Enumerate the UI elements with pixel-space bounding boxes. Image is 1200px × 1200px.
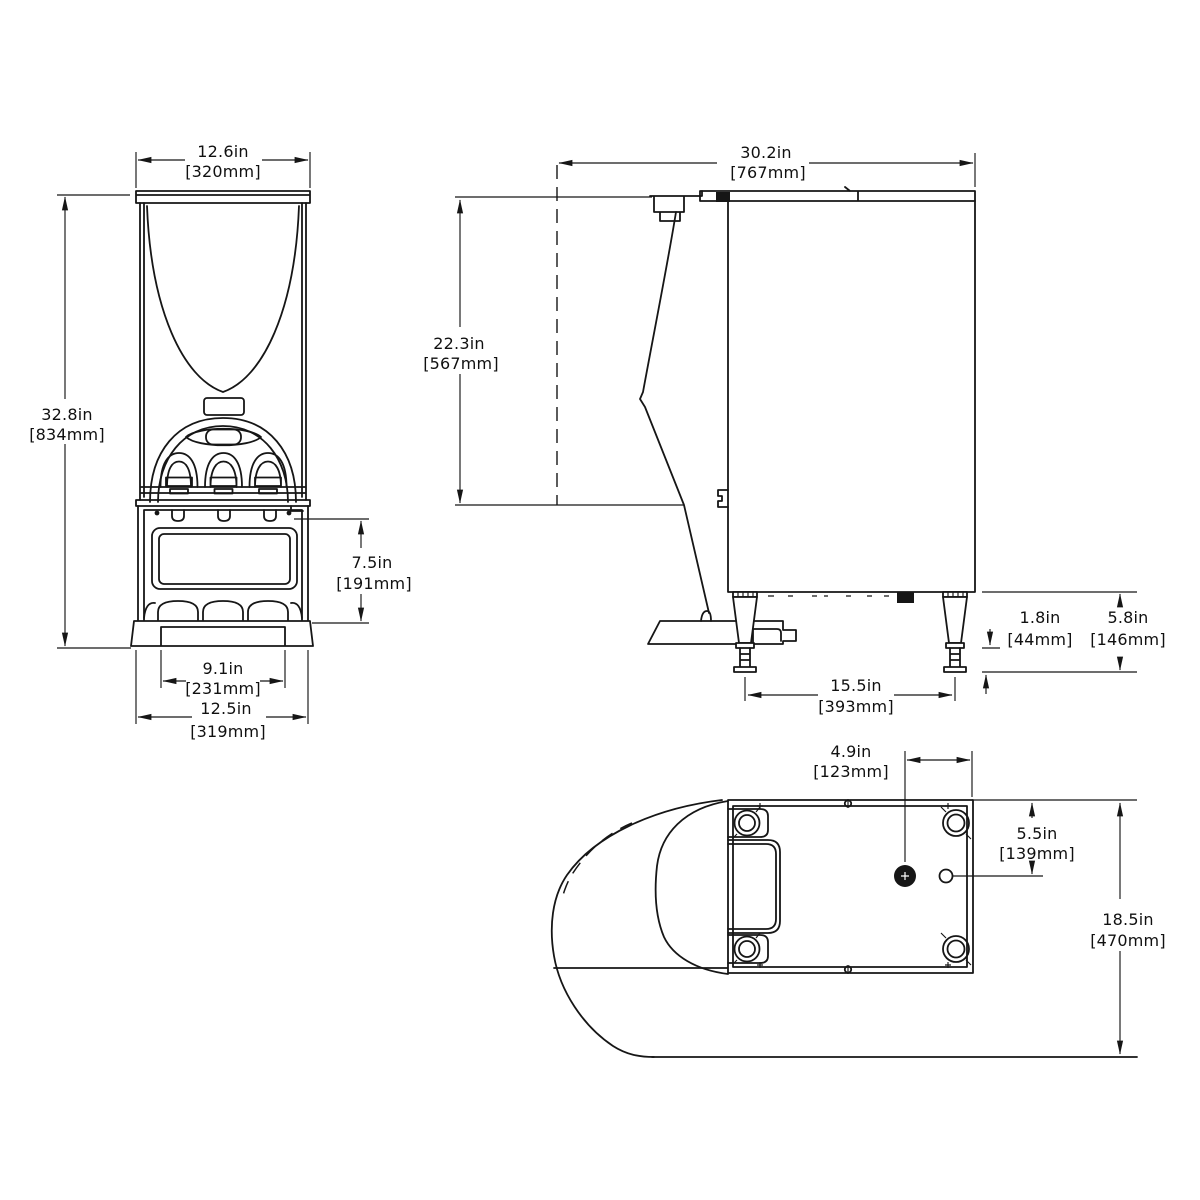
dim-leg-spacing-mm: [393mm] [818, 697, 894, 716]
dim-leg-height-in: 5.8in [1107, 608, 1148, 627]
front-badge [204, 398, 244, 415]
dim-counter-height-mm: [567mm] [423, 354, 499, 373]
dim-counter-height-in: 22.3in [433, 334, 484, 353]
dim-base-inner-mm: [231mm] [185, 679, 261, 698]
side-view: 30.2in [767mm] 22.3in [567mm] 15.5in [39… [423, 143, 1166, 716]
front-dim-height: 32.8in [834mm] [29, 195, 131, 648]
dim-leg-height-mm: [146mm] [1090, 630, 1166, 649]
front-lid [136, 191, 310, 203]
dim-front-height-in: 32.8in [41, 405, 92, 424]
front-body-walls [140, 203, 306, 500]
spec-sheet-page: 12.6in [320mm] 32.8in [834mm] 7.5in [191… [0, 0, 1200, 1200]
dim-footprint-mm: [470mm] [1090, 931, 1166, 950]
bottom-plate-outer [728, 800, 973, 973]
front-lens-button [206, 430, 241, 445]
dim-depth-mm: [767mm] [730, 163, 806, 182]
dim-base-in: 12.5in [200, 699, 251, 718]
dimension-drawing: 12.6in [320mm] 32.8in [834mm] 7.5in [191… [0, 0, 1200, 1200]
side-hopper-profile [640, 212, 709, 613]
dim-dispense-in: 7.5in [351, 553, 392, 572]
dim-drain-side-mm: [123mm] [813, 762, 889, 781]
side-outline [640, 187, 975, 672]
front-dim-dispense: 7.5in [191mm] [294, 519, 412, 623]
front-dim-base-inner: 9.1in [231mm] [161, 650, 285, 698]
bottom-view: 4.9in [123mm] 5.5in [139mm] 18.5in [470m… [552, 742, 1166, 1057]
front-base [131, 621, 313, 646]
dim-base-inner-in: 9.1in [202, 659, 243, 678]
dim-base-mm: [319mm] [190, 722, 266, 741]
front-lens [186, 429, 261, 446]
bottom-front-curve-outer [552, 800, 722, 1057]
front-tray-window-outer [152, 528, 297, 589]
side-drip-tray [648, 621, 796, 644]
bottom-dim-drain-rear: 5.5in [139mm] [953, 800, 1137, 876]
front-tray-window-inner [159, 534, 290, 584]
dim-front-height-mm: [834mm] [29, 425, 105, 444]
bottom-cutout [728, 840, 780, 933]
bottom-dim-drain-side: 4.9in [123mm] [813, 742, 972, 862]
bottom-hole [940, 870, 953, 883]
side-drain-fitting [897, 592, 914, 603]
front-outline [131, 191, 313, 646]
bottom-front-curve-hidden [562, 823, 632, 899]
dim-front-width-in: 12.6in [197, 142, 248, 161]
front-screw-left [155, 511, 160, 516]
side-body [728, 201, 975, 592]
front-hopper-curve [147, 206, 299, 392]
side-dim-leg-spacing: 15.5in [393mm] [745, 676, 955, 716]
dim-foot-thread-mm: [44mm] [1007, 630, 1072, 649]
side-lid [700, 187, 975, 201]
dim-dispense-mm: [191mm] [336, 574, 412, 593]
front-screw-right [287, 511, 292, 516]
side-dim-legs: 1.8in [44mm] 5.8in [146mm] [982, 592, 1166, 694]
front-view: 12.6in [320mm] 32.8in [834mm] 7.5in [191… [29, 142, 412, 741]
dim-foot-thread-in: 1.8in [1019, 608, 1060, 627]
front-cup-rests [144, 601, 302, 620]
bottom-front-curve-inner [656, 801, 728, 974]
dim-footprint-in: 18.5in [1102, 910, 1153, 929]
side-dim-counter-height: 22.3in [567mm] [423, 197, 684, 505]
side-spout [718, 490, 728, 507]
dim-drain-rear-mm: [139mm] [999, 844, 1075, 863]
dim-front-width-mm: [320mm] [185, 162, 261, 181]
side-bumper [701, 611, 711, 621]
front-dim-width: 12.6in [320mm] [136, 142, 310, 188]
bottom-dim-depth: 18.5in [470mm] [1090, 803, 1166, 1054]
dim-leg-spacing-in: 15.5in [830, 676, 881, 695]
dim-drain-side-in: 4.9in [830, 742, 871, 761]
front-nozzles [172, 510, 276, 521]
side-rear-leg [943, 592, 967, 672]
dim-drain-rear-in: 5.5in [1016, 824, 1057, 843]
dim-depth-in: 30.2in [740, 143, 791, 162]
